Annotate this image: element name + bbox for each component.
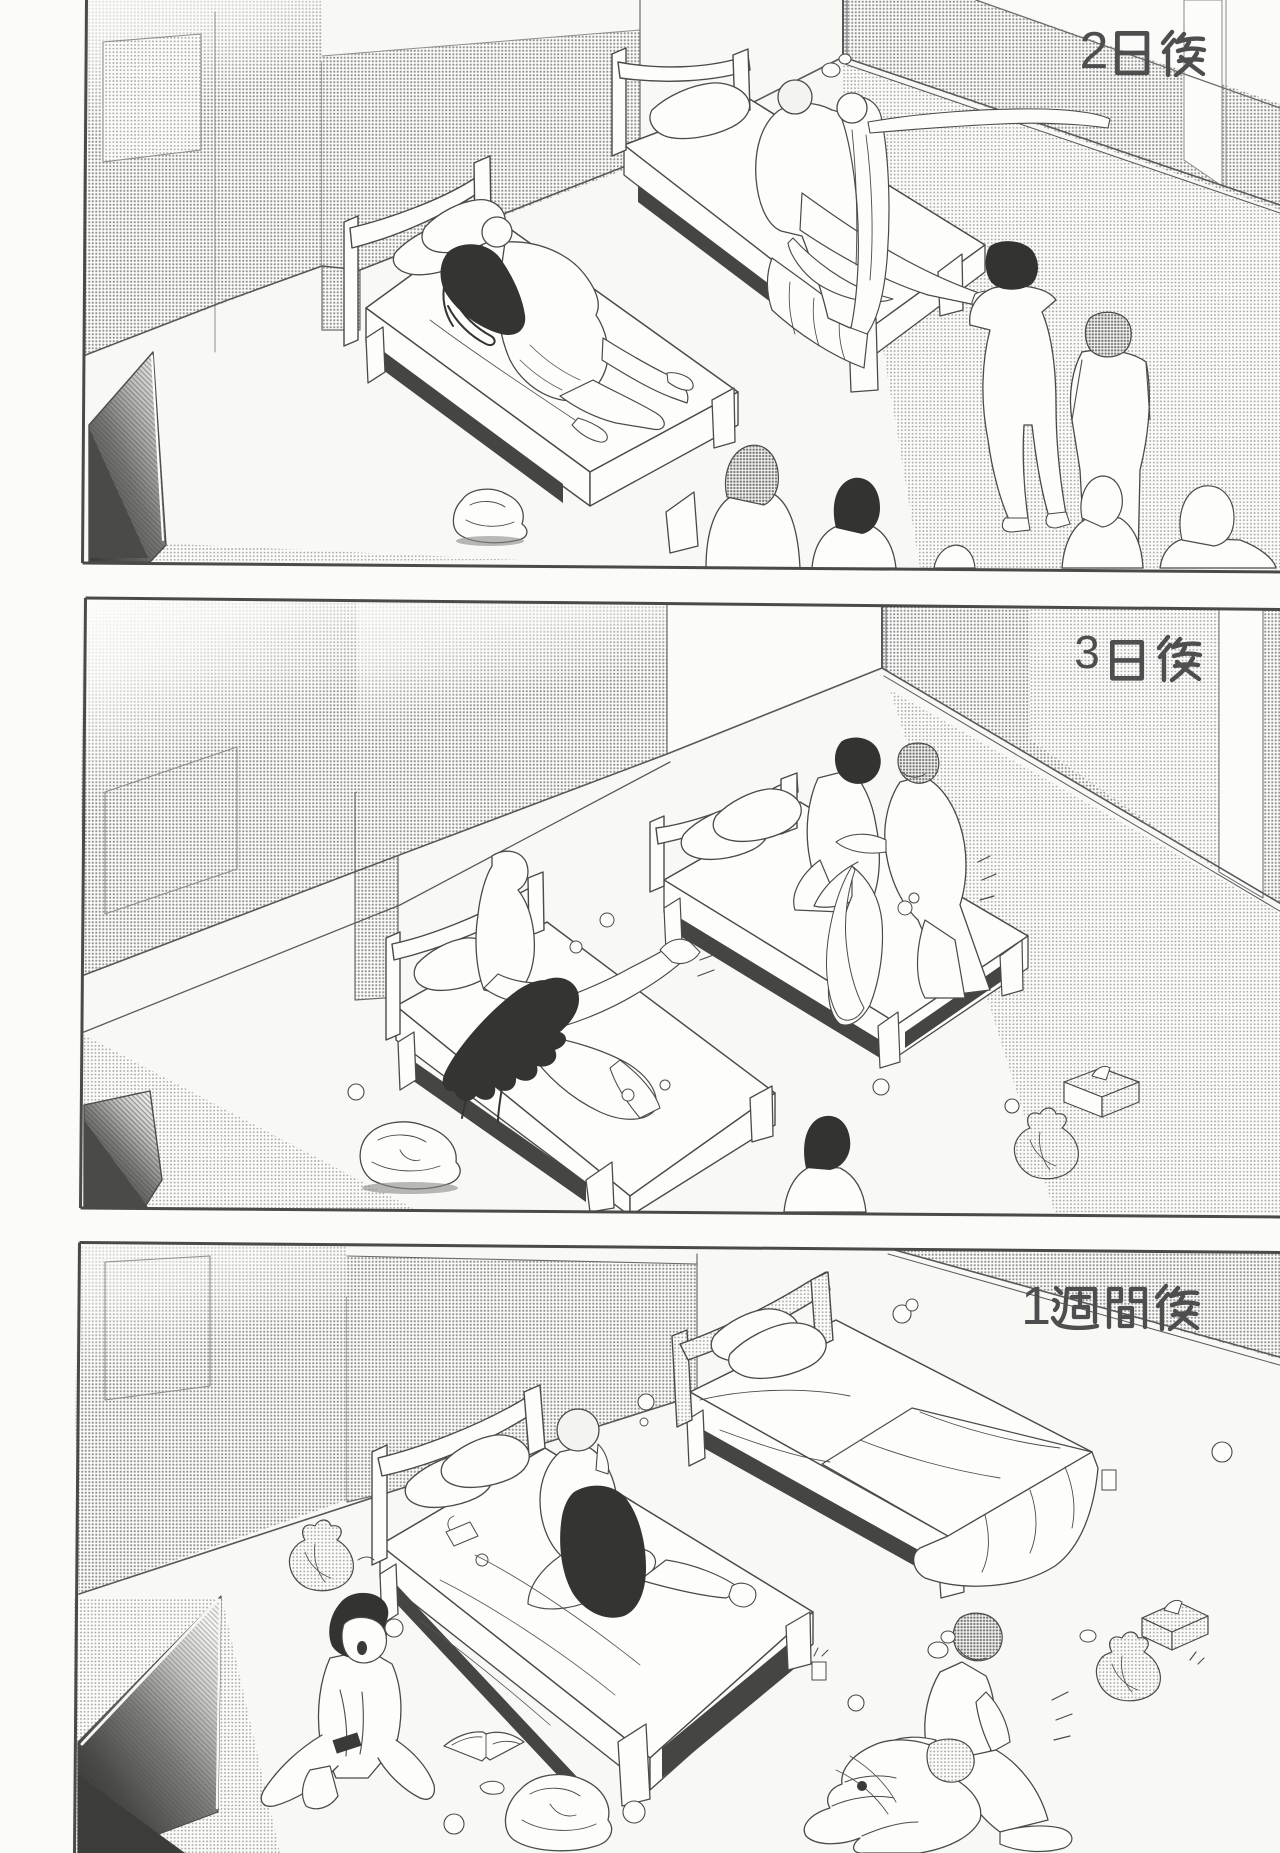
svg-text:3: 3 [1074, 626, 1100, 678]
svg-text:1: 1 [1021, 1276, 1051, 1336]
svg-text:2: 2 [1080, 22, 1109, 80]
